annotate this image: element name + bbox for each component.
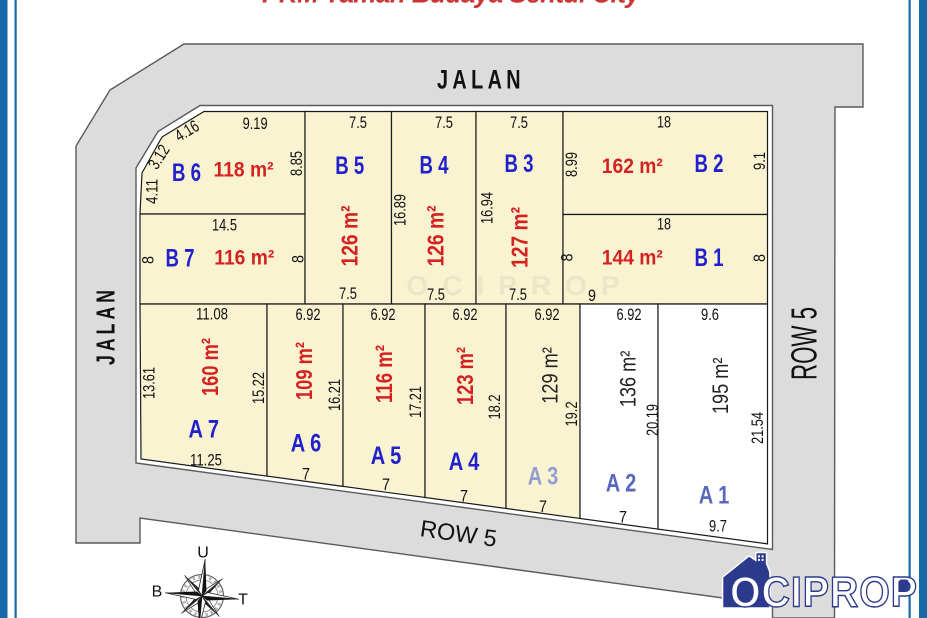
svg-text:8: 8 bbox=[750, 254, 769, 262]
svg-text:B 1: B 1 bbox=[695, 244, 724, 272]
svg-text:8.85: 8.85 bbox=[287, 151, 306, 176]
svg-text:U: U bbox=[197, 545, 209, 562]
svg-text:7.5: 7.5 bbox=[510, 113, 528, 132]
svg-text:PKM Taman Budaya Sentul City: PKM Taman Budaya Sentul City bbox=[262, 0, 642, 9]
svg-text:7.5: 7.5 bbox=[339, 284, 357, 303]
svg-text:6.92: 6.92 bbox=[453, 305, 478, 324]
svg-text:JALAN: JALAN bbox=[437, 65, 525, 95]
svg-text:A 4: A 4 bbox=[449, 448, 480, 476]
svg-text:18: 18 bbox=[657, 113, 671, 132]
svg-text:9: 9 bbox=[588, 286, 596, 305]
svg-text:16.21: 16.21 bbox=[325, 379, 344, 411]
svg-text:9.19: 9.19 bbox=[243, 114, 268, 133]
svg-text:116 m²: 116 m² bbox=[371, 345, 397, 403]
svg-text:13.61: 13.61 bbox=[140, 367, 159, 399]
svg-text:7.5: 7.5 bbox=[427, 285, 445, 304]
svg-text:126 m²: 126 m² bbox=[337, 205, 363, 266]
svg-text:7: 7 bbox=[302, 465, 310, 484]
svg-text:17.21: 17.21 bbox=[406, 386, 425, 418]
svg-text:8: 8 bbox=[289, 255, 308, 263]
svg-text:8.99: 8.99 bbox=[562, 152, 581, 177]
svg-text:160 m²: 160 m² bbox=[197, 338, 223, 396]
svg-text:116 m²: 116 m² bbox=[214, 247, 274, 270]
svg-text:A 7: A 7 bbox=[189, 416, 220, 444]
svg-text:A 1: A 1 bbox=[699, 482, 730, 510]
svg-text:B 7: B 7 bbox=[166, 245, 195, 273]
svg-text:B 4: B 4 bbox=[420, 152, 449, 180]
svg-text:7.5: 7.5 bbox=[435, 113, 453, 132]
svg-text:7: 7 bbox=[460, 487, 468, 506]
svg-text:6.92: 6.92 bbox=[535, 305, 560, 324]
svg-text:B: B bbox=[152, 584, 163, 601]
svg-text:195 m²: 195 m² bbox=[708, 358, 733, 415]
svg-text:6.92: 6.92 bbox=[617, 305, 642, 324]
svg-text:A 5: A 5 bbox=[371, 442, 402, 470]
svg-text:162 m²: 162 m² bbox=[602, 155, 663, 178]
svg-text:OCIPROP: OCIPROP bbox=[730, 570, 918, 617]
svg-text:B 6: B 6 bbox=[172, 159, 201, 187]
svg-text:ROW 5: ROW 5 bbox=[784, 307, 825, 380]
svg-text:129 m²: 129 m² bbox=[538, 347, 563, 404]
svg-text:16.89: 16.89 bbox=[391, 194, 410, 226]
svg-text:9.1: 9.1 bbox=[750, 152, 769, 170]
svg-text:16.94: 16.94 bbox=[478, 192, 497, 224]
svg-text:A 2: A 2 bbox=[606, 470, 637, 498]
svg-text:20.19: 20.19 bbox=[643, 404, 662, 436]
svg-text:6.92: 6.92 bbox=[371, 305, 396, 324]
svg-text:4.11: 4.11 bbox=[143, 179, 162, 204]
svg-text:21.54: 21.54 bbox=[748, 412, 767, 444]
svg-text:6.92: 6.92 bbox=[296, 305, 321, 324]
svg-text:T: T bbox=[238, 592, 248, 609]
svg-text:8: 8 bbox=[139, 256, 158, 264]
svg-text:9.7: 9.7 bbox=[709, 517, 727, 536]
svg-text:7.5: 7.5 bbox=[509, 285, 527, 304]
svg-text:A 3: A 3 bbox=[528, 463, 559, 491]
svg-text:11.08: 11.08 bbox=[196, 305, 228, 324]
svg-text:9.6: 9.6 bbox=[701, 305, 719, 324]
svg-text:15.22: 15.22 bbox=[249, 372, 268, 404]
svg-text:B 2: B 2 bbox=[695, 150, 724, 178]
svg-text:JALAN: JALAN bbox=[91, 286, 121, 365]
svg-text:7: 7 bbox=[539, 497, 547, 516]
svg-text:144 m²: 144 m² bbox=[602, 247, 663, 270]
svg-text:7: 7 bbox=[619, 508, 627, 527]
svg-text:126 m²: 126 m² bbox=[423, 205, 449, 266]
svg-text:11.25: 11.25 bbox=[190, 451, 222, 470]
svg-text:127 m²: 127 m² bbox=[507, 207, 533, 268]
svg-text:B 5: B 5 bbox=[335, 152, 364, 180]
svg-text:18.2: 18.2 bbox=[485, 395, 504, 420]
svg-text:109 m²: 109 m² bbox=[291, 342, 317, 400]
svg-text:8: 8 bbox=[558, 254, 577, 262]
svg-text:7: 7 bbox=[382, 475, 390, 494]
svg-text:136 m²: 136 m² bbox=[616, 351, 641, 408]
svg-text:19.2: 19.2 bbox=[562, 402, 581, 427]
svg-text:18: 18 bbox=[657, 215, 671, 234]
svg-text:7.5: 7.5 bbox=[349, 113, 367, 132]
svg-text:14.5: 14.5 bbox=[212, 216, 237, 235]
svg-text:123 m²: 123 m² bbox=[452, 347, 478, 405]
svg-text:B 3: B 3 bbox=[505, 150, 534, 178]
svg-text:118 m²: 118 m² bbox=[214, 159, 274, 182]
svg-text:A 6: A 6 bbox=[291, 430, 322, 458]
